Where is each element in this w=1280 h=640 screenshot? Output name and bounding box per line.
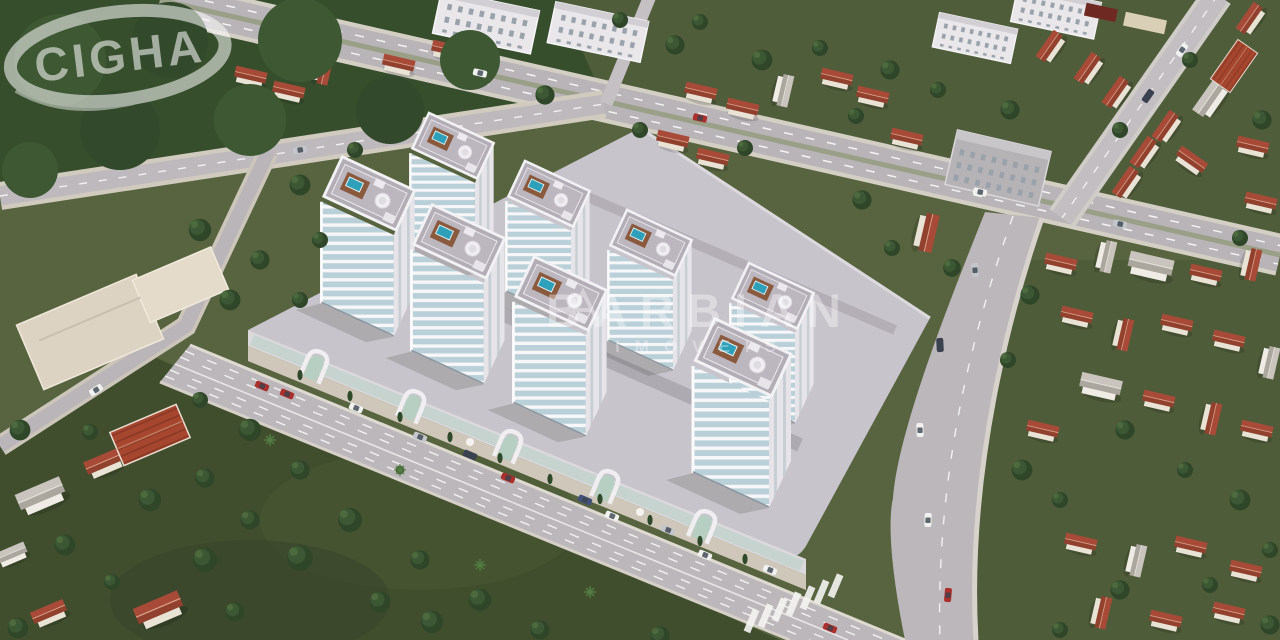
tree <box>1230 490 1251 511</box>
tree <box>665 35 684 54</box>
tree <box>8 618 29 639</box>
cypress <box>347 391 352 401</box>
cypress <box>742 554 747 564</box>
tree <box>1202 577 1218 593</box>
tree <box>139 489 161 511</box>
tree <box>737 140 753 156</box>
tree <box>1012 460 1033 481</box>
tree <box>1260 615 1279 634</box>
tree <box>225 602 244 621</box>
forest-canopy <box>214 84 286 156</box>
tree <box>1110 580 1129 599</box>
tree <box>1182 52 1198 68</box>
tree <box>1000 352 1016 368</box>
tree <box>287 545 313 571</box>
tree <box>189 219 211 241</box>
car <box>924 513 931 527</box>
tree <box>1177 462 1193 478</box>
tree <box>250 250 269 269</box>
tree <box>239 419 261 441</box>
tree <box>312 232 328 248</box>
tree <box>290 460 309 479</box>
tree <box>812 40 828 56</box>
tree <box>82 424 98 440</box>
aerial-render: BARBIAN IMÓVEIS CIGHA <box>0 0 1280 640</box>
forest-canopy <box>2 142 58 198</box>
tree <box>55 535 76 556</box>
tree <box>530 620 549 639</box>
tree <box>10 420 31 441</box>
tree <box>192 392 208 408</box>
tree <box>195 468 214 487</box>
tree <box>930 82 946 98</box>
car <box>936 338 944 352</box>
forest-canopy <box>356 76 424 144</box>
tree <box>240 510 259 529</box>
cypress <box>547 474 552 484</box>
tree <box>752 50 773 71</box>
cafe-umbrella <box>466 438 474 446</box>
cypress <box>647 515 652 525</box>
tree <box>1115 420 1134 439</box>
tree <box>220 290 241 311</box>
scene-canvas: BARBIAN IMÓVEIS CIGHA <box>0 0 1280 640</box>
car <box>916 423 923 437</box>
tree <box>338 508 362 532</box>
tree <box>469 589 491 611</box>
tree <box>1252 110 1271 129</box>
tree <box>852 190 871 209</box>
tree <box>1232 230 1248 246</box>
tree <box>410 550 429 569</box>
cypress <box>397 412 402 422</box>
tree <box>880 60 899 79</box>
cypress <box>697 536 702 546</box>
cypress <box>497 453 502 463</box>
forest-canopy <box>440 30 500 90</box>
tree <box>1052 492 1068 508</box>
tree <box>943 259 961 277</box>
tree <box>535 85 554 104</box>
tree <box>1020 285 1039 304</box>
tree <box>1112 122 1128 138</box>
cypress <box>297 370 302 380</box>
forest-canopy <box>258 0 342 82</box>
cypress <box>447 432 452 442</box>
car <box>944 588 952 603</box>
tree <box>104 574 120 590</box>
tree <box>1262 542 1278 558</box>
tree <box>692 14 708 30</box>
tree <box>1052 622 1068 638</box>
tree <box>1000 100 1019 119</box>
cafe-umbrella <box>636 508 644 516</box>
tree <box>290 175 311 196</box>
car <box>971 263 979 278</box>
tree <box>421 611 443 633</box>
tree <box>632 122 648 138</box>
cypress <box>597 494 602 504</box>
tree <box>292 292 308 308</box>
tree <box>347 142 363 158</box>
watermark-subtext: IMÓVEIS <box>615 337 791 356</box>
tree <box>193 548 217 572</box>
watermark-text: BARBIAN <box>546 284 854 337</box>
tree <box>612 12 628 28</box>
tree <box>370 592 391 613</box>
tree <box>884 240 900 256</box>
tree <box>848 108 864 124</box>
